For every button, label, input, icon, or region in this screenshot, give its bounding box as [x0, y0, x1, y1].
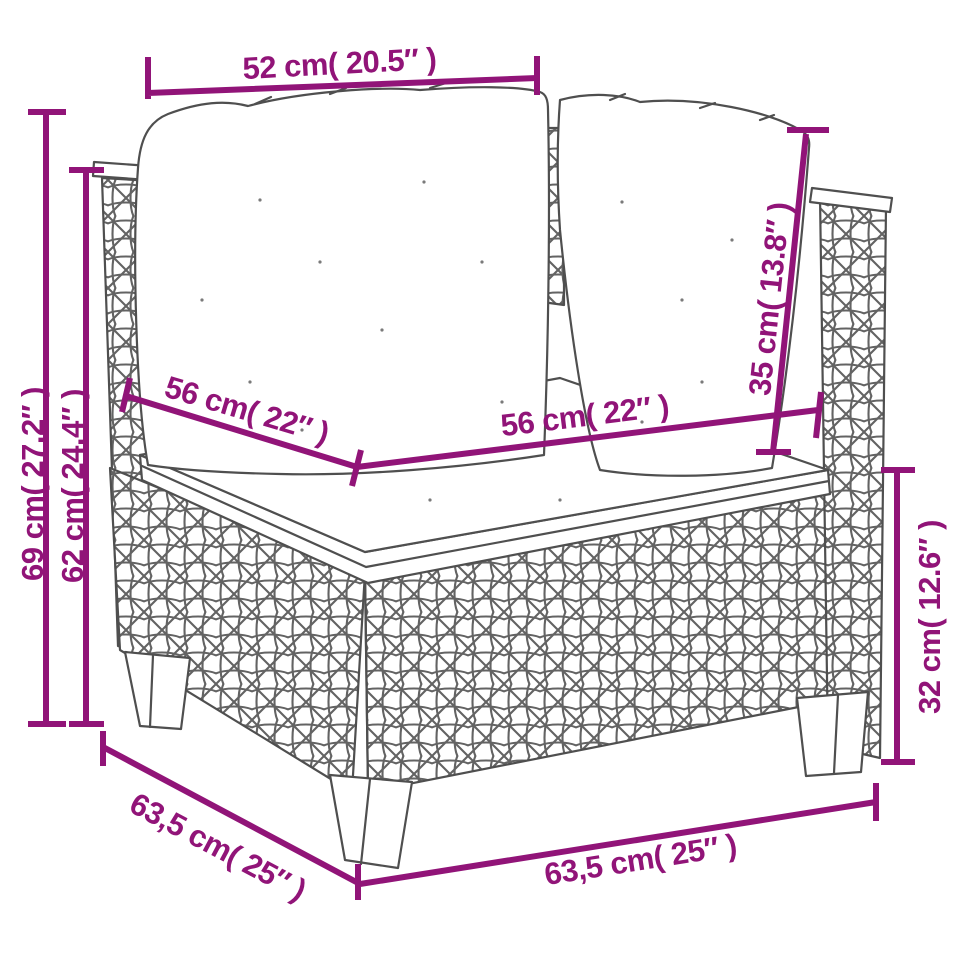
dimension-base-height-label: 32 cm( 12.6″ ) — [912, 520, 947, 714]
dimension-back-height-label: 62 cm( 24.4″ ) — [55, 389, 90, 583]
dimension-diagram: 52 cm( 20.5″ ) 69 cm( 27.2″ ) 62 cm( 24.… — [0, 0, 955, 955]
dimension-overall-height-label: 69 cm( 27.2″ ) — [15, 387, 50, 581]
right-arm-post — [820, 196, 886, 758]
front-right-leg — [797, 692, 868, 776]
sofa-dimension-svg: 52 cm( 20.5″ ) 69 cm( 27.2″ ) 62 cm( 24.… — [0, 0, 955, 955]
